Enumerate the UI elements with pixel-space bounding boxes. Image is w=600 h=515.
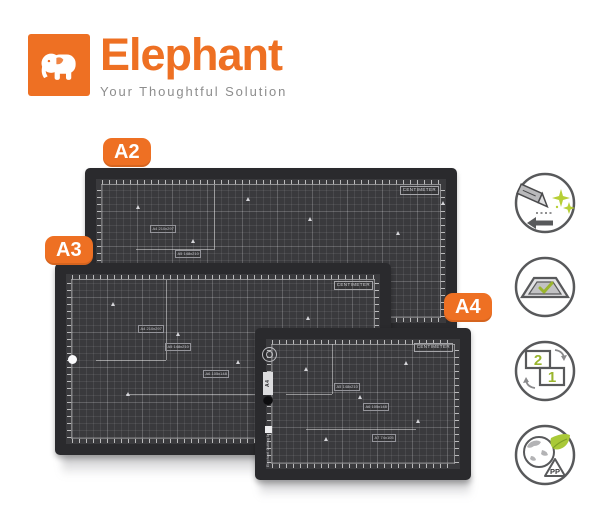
size-badge-a3: A3 <box>45 236 93 265</box>
brand-name: Elephant <box>100 34 287 77</box>
guide-line <box>306 429 416 430</box>
mat-shadow <box>260 477 470 497</box>
ruler-ticks <box>455 345 459 463</box>
guide-line <box>214 185 215 249</box>
ruler-ticks <box>102 180 440 184</box>
two-sided-icon: 2 1 <box>509 335 581 407</box>
mat-size-side-label: A4 <box>263 372 273 395</box>
brand-tagline: Your Thoughtful Solution <box>100 84 287 99</box>
self-healing-mat-icon <box>509 251 581 323</box>
self-healing-stamp-icon <box>262 347 277 362</box>
guide-mark <box>358 395 362 399</box>
side-number-2: 2 <box>534 352 542 369</box>
size-label: A5 148x210 <box>175 250 201 258</box>
size-label: A5 148x210 <box>165 343 191 351</box>
size-label: A4 210x297 <box>138 325 164 333</box>
brand-text: Elephant Your Thoughtful Solution <box>100 34 287 99</box>
guide-mark <box>111 302 115 306</box>
hanging-hole <box>68 355 77 364</box>
smooth-cutting-icon <box>509 167 581 239</box>
guide-mark <box>306 316 310 320</box>
eco-pp-icon: PP <box>509 419 581 491</box>
guide-mark <box>441 201 445 205</box>
guide-mark <box>136 205 140 209</box>
side-number-1: 1 <box>548 369 556 386</box>
guide-line <box>126 394 276 395</box>
size-label: A5 148x210 <box>334 383 360 391</box>
guide-mark <box>404 361 408 365</box>
guide-mark <box>236 360 240 364</box>
mat-surface: CENTIMETER A5 148x210 A6 105x148 A7 74x1… <box>266 339 460 469</box>
guide-mark <box>396 231 400 235</box>
cutting-mat-a4: A4 Elephant Cutting Mat CENTIMETER A5 14… <box>255 328 471 480</box>
elephant-icon <box>28 34 90 96</box>
ruler-ticks <box>72 275 374 279</box>
guide-mark <box>176 332 180 336</box>
guide-line <box>96 360 166 361</box>
unit-label: CENTIMETER <box>400 186 439 195</box>
guide-mark <box>246 197 250 201</box>
edge-logo-icon <box>265 426 272 433</box>
size-label: A6 105x148 <box>203 370 229 378</box>
guide-line <box>332 344 333 394</box>
size-badge-a4: A4 <box>444 293 492 322</box>
guide-line <box>286 394 332 395</box>
ruler-ticks <box>272 464 454 468</box>
guide-mark <box>191 239 195 243</box>
product-image-stage: Elephant Your Thoughtful Solution A2 A3 … <box>0 0 600 515</box>
guide-mark <box>126 392 130 396</box>
size-label: A7 74x105 <box>372 434 396 442</box>
brand-logo: Elephant Your Thoughtful Solution <box>28 34 287 99</box>
guide-mark <box>308 217 312 221</box>
guide-mark <box>304 367 308 371</box>
pp-label: PP <box>550 467 560 476</box>
unit-label: CENTIMETER <box>334 281 373 290</box>
size-label: A4 210x297 <box>150 225 176 233</box>
edge-brand-text: Elephant Cutting Mat <box>266 435 270 467</box>
guide-mark <box>416 419 420 423</box>
size-badge-a2: A2 <box>103 138 151 167</box>
edge-brand: Elephant Cutting Mat <box>262 426 274 468</box>
guide-mark <box>324 437 328 441</box>
hanging-hole <box>263 395 273 405</box>
size-label: A6 105x148 <box>363 403 389 411</box>
unit-label: CENTIMETER <box>414 343 453 352</box>
